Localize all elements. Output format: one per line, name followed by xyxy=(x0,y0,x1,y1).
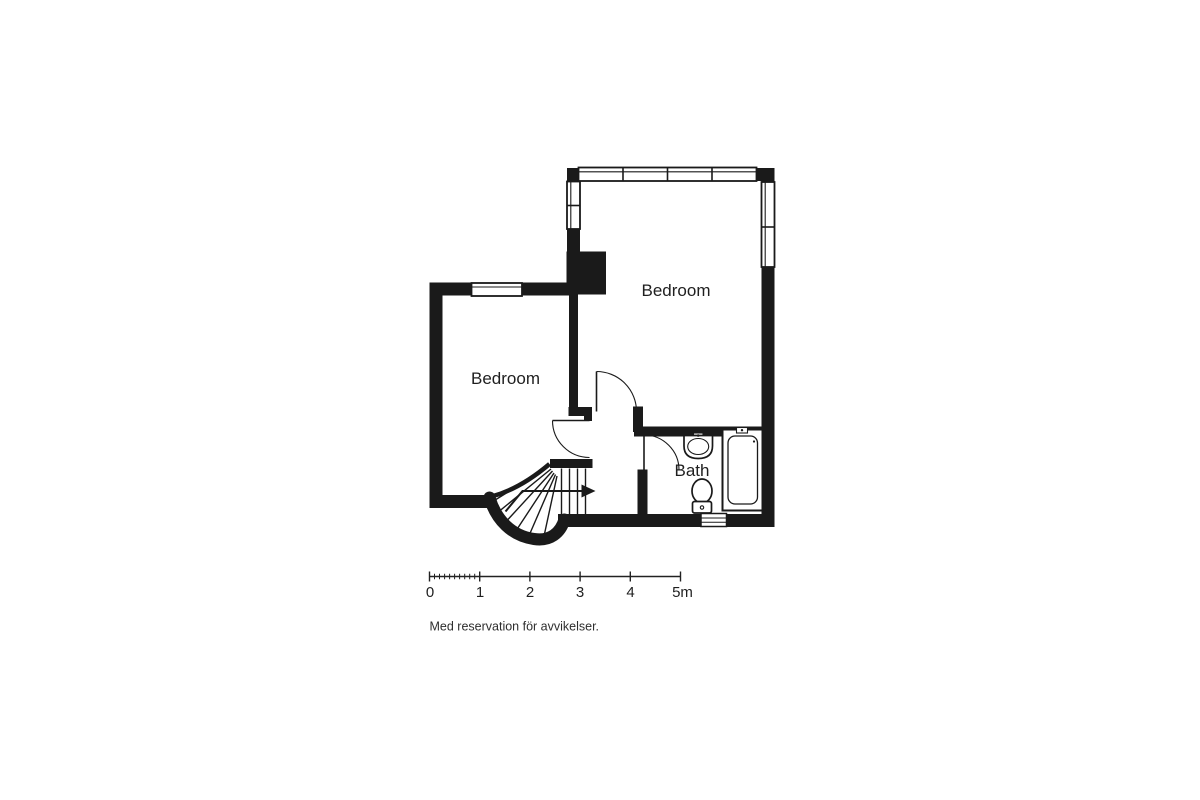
window-icon xyxy=(762,182,775,267)
shaft-icon xyxy=(567,252,607,295)
scale-tick-label: 2 xyxy=(526,584,534,601)
bathtub-icon xyxy=(723,428,763,511)
room-label-bath: Bath xyxy=(675,461,710,480)
room-label-bedroom-top: Bedroom xyxy=(642,281,711,300)
scale-bar: 0 1 2 3 4 5m xyxy=(426,572,693,602)
sink-icon xyxy=(684,433,713,459)
towel-radiator-icon xyxy=(701,514,727,527)
disclaimer-text: Med reservation för avvikelser. xyxy=(430,620,600,634)
door-swing-icon xyxy=(597,372,637,412)
windows xyxy=(472,168,775,297)
room-label-bedroom-left: Bedroom xyxy=(471,369,540,388)
scale-tick-label: 1 xyxy=(476,584,484,601)
walls xyxy=(436,175,768,540)
room-labels: Bedroom Bedroom Bath xyxy=(471,281,710,480)
toilet-icon xyxy=(692,479,712,513)
scale-tick-label: 3 xyxy=(576,584,584,601)
window-icon xyxy=(472,283,523,296)
window-icon xyxy=(579,168,757,182)
scale-tick-label: 4 xyxy=(626,584,634,601)
door-swing-icon xyxy=(553,421,590,458)
scale-tick-label: 0 xyxy=(426,584,434,601)
scale-tick-label: 5m xyxy=(672,584,693,601)
floor-plan-canvas: Bedroom Bedroom Bath 0 1 2 3 4 5m Med re… xyxy=(0,0,1200,800)
wall-stair-curve xyxy=(490,498,565,540)
floor-plan-page: Bedroom Bedroom Bath 0 1 2 3 4 5m Med re… xyxy=(0,0,1200,800)
window-icon xyxy=(567,182,580,230)
